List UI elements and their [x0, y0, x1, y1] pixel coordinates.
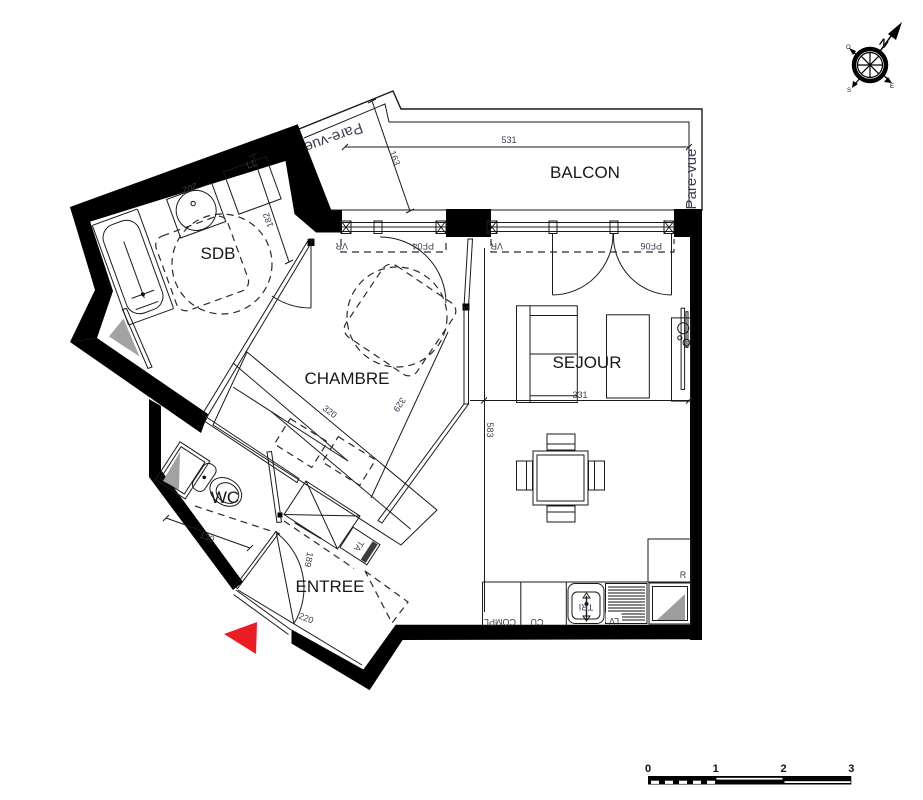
- svg-text:O: O: [846, 45, 851, 51]
- svg-text:R: R: [680, 570, 687, 580]
- svg-text:VR: VR: [490, 241, 503, 251]
- svg-text:1: 1: [713, 763, 719, 775]
- svg-text:583: 583: [485, 422, 495, 437]
- svg-text:COMPL: COMPL: [484, 617, 516, 627]
- svg-text:2: 2: [781, 763, 787, 775]
- svg-text:LV: LV: [609, 616, 619, 626]
- svg-text:0: 0: [645, 763, 651, 775]
- svg-text:Pare-vue: Pare-vue: [683, 149, 700, 210]
- svg-text:TRI: TRI: [579, 602, 594, 612]
- svg-text:3: 3: [848, 763, 854, 775]
- svg-text:CHAMBRE: CHAMBRE: [304, 369, 389, 388]
- svg-text:BALCON: BALCON: [550, 163, 620, 182]
- svg-text:SDB: SDB: [201, 244, 236, 263]
- svg-text:E: E: [890, 84, 894, 90]
- svg-text:ENTREE: ENTREE: [296, 577, 365, 596]
- svg-text:PF04: PF04: [412, 241, 434, 251]
- svg-text:VR: VR: [335, 241, 348, 251]
- svg-text:531: 531: [501, 135, 516, 145]
- svg-text:PF06: PF06: [640, 241, 662, 251]
- svg-text:331: 331: [572, 390, 587, 400]
- svg-text:S: S: [847, 88, 851, 94]
- svg-text:WC: WC: [211, 488, 239, 507]
- svg-text:SEJOUR: SEJOUR: [553, 353, 622, 372]
- svg-text:CU: CU: [531, 617, 544, 627]
